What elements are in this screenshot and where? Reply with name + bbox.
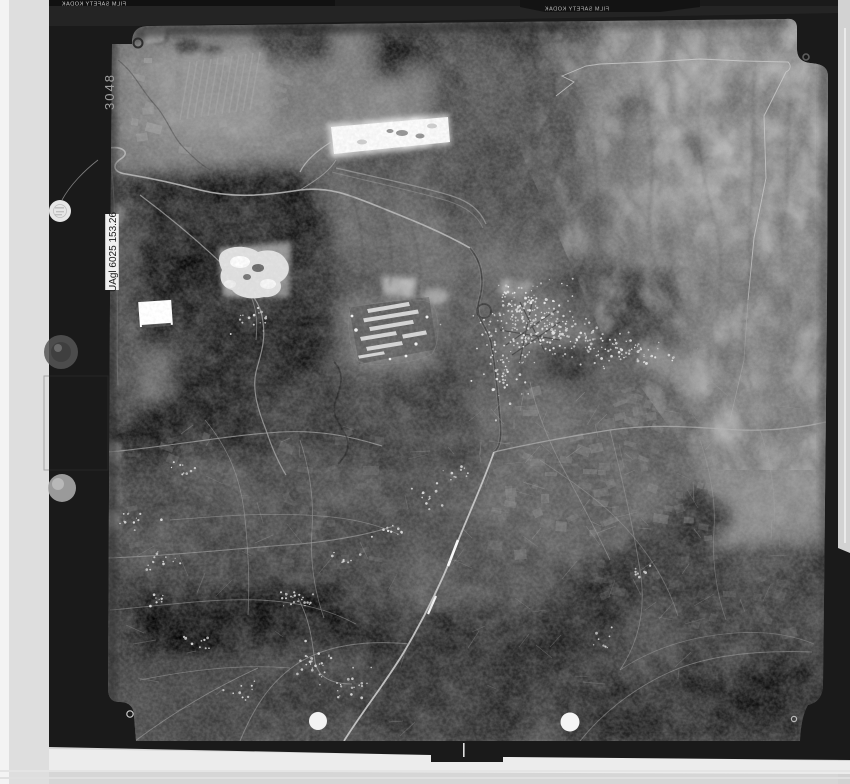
svg-text:3048: 3048	[102, 73, 117, 110]
svg-text:FILM SAFETY KODAK: FILM SAFETY KODAK	[61, 2, 126, 8]
svg-text:UAgl 6025 153.26: UAgl 6025 153.26	[108, 212, 119, 293]
svg-text:FILM SAFETY KODAK: FILM SAFETY KODAK	[544, 7, 609, 13]
